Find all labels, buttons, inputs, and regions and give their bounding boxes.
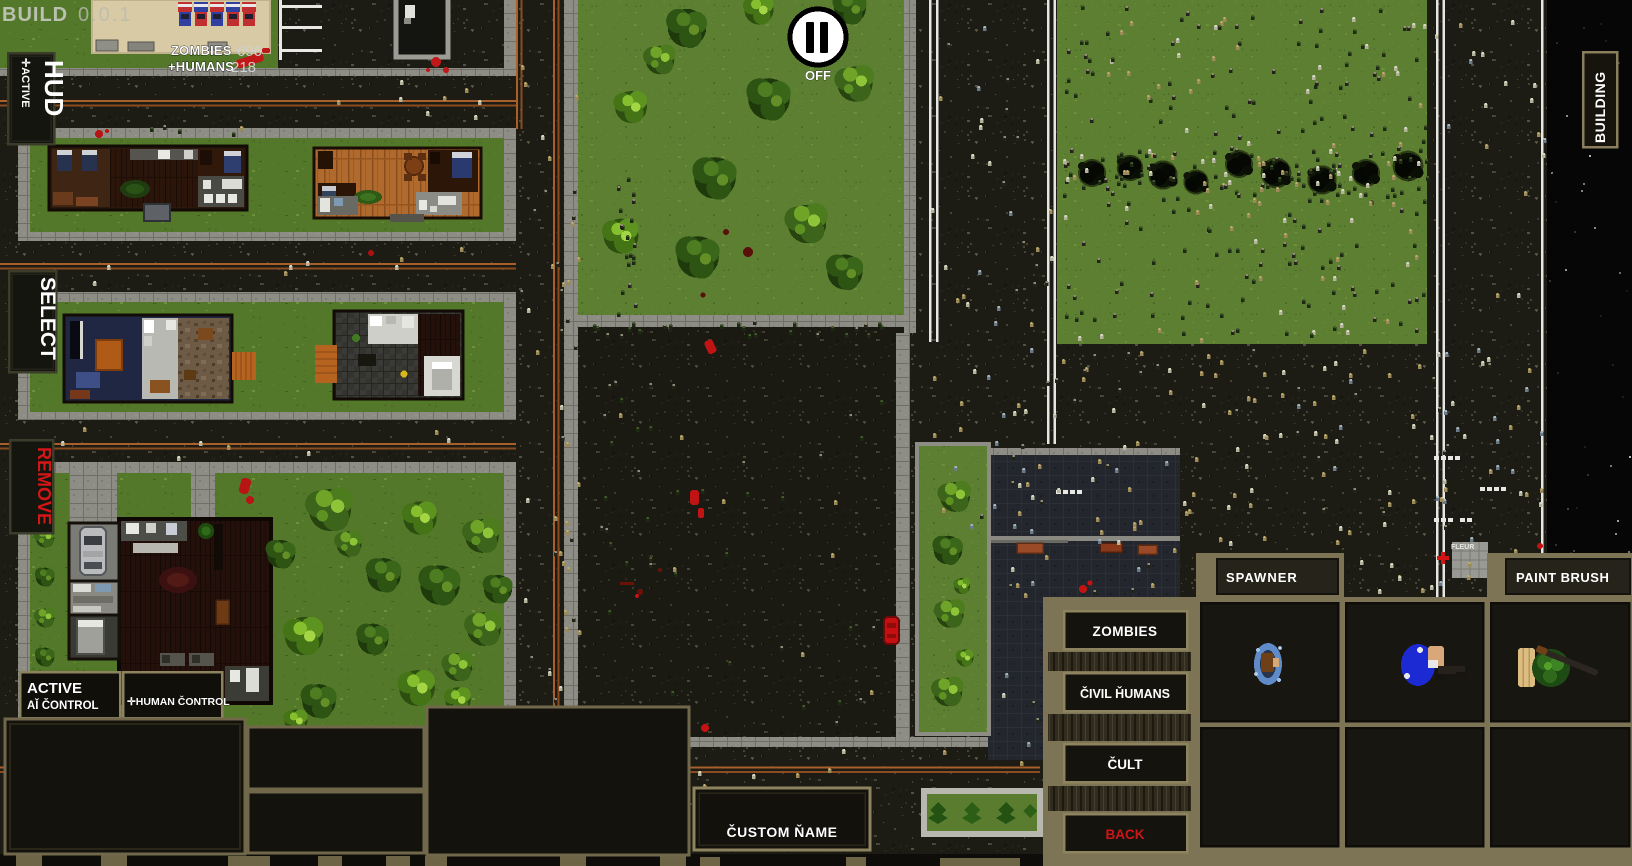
svg-text:ČULT: ČULT (1108, 757, 1144, 772)
svg-text:ZOMBIES: ZOMBIES (1092, 624, 1157, 639)
svg-text:✛HUMAN ČONTROL: ✛HUMAN ČONTROL (127, 695, 230, 708)
svg-text:BUILD: BUILD (2, 4, 68, 26)
svg-text:PAINT BRUSH: PAINT BRUSH (1516, 570, 1609, 585)
svg-text:BACK: BACK (1106, 827, 1145, 842)
svg-text:218: 218 (231, 59, 256, 76)
svg-text:HUD: HUD (39, 60, 69, 116)
svg-text:OFF: OFF (805, 68, 831, 83)
svg-text:REMOVE: REMOVE (34, 447, 54, 525)
svg-text:FLEUR: FLEUR (1451, 544, 1474, 551)
svg-text:696: 696 (237, 43, 262, 60)
svg-text:SELECT: SELECT (36, 277, 59, 360)
svg-text:ZOMBIES: ZOMBIES (171, 43, 232, 58)
svg-text:BUILDING: BUILDING (1592, 71, 1608, 143)
svg-text:ACTIVE: ACTIVE (27, 680, 82, 697)
svg-text:✛ACTIVE: ✛ACTIVE (19, 58, 31, 108)
svg-text:0.0.1: 0.0.1 (78, 4, 132, 26)
svg-text:+HUMANS: +HUMANS (168, 59, 234, 74)
svg-text:SPAWNER: SPAWNER (1226, 570, 1298, 585)
svg-text:ČUSTOM ŇAME: ČUSTOM ŇAME (726, 823, 837, 840)
svg-text:AĬ ČONTROL: AĬ ČONTROL (27, 699, 99, 712)
svg-text:ČIVIL ȞUMANS: ČIVIL ȞUMANS (1080, 686, 1170, 701)
